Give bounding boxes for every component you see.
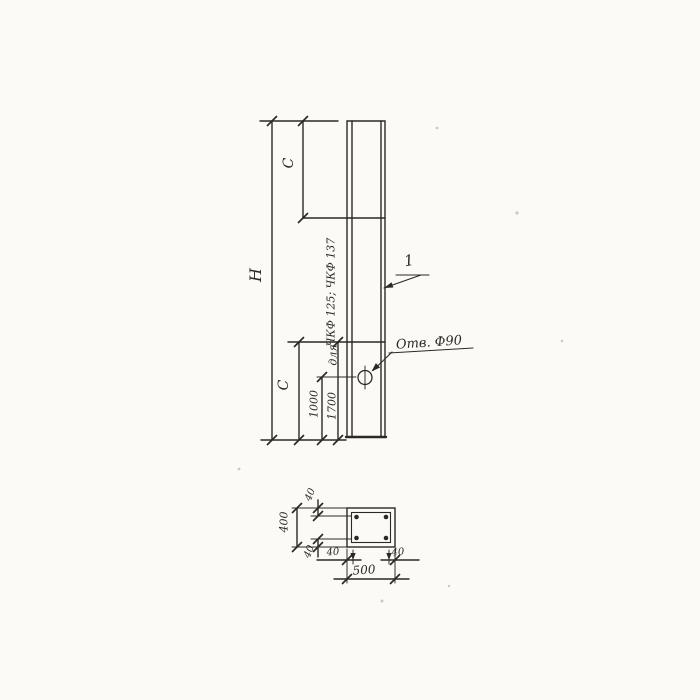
rebar-dot xyxy=(354,515,359,520)
note-series-label: ЧКФ 125; ЧКФ 137 xyxy=(326,238,337,346)
drawing-linework xyxy=(0,0,700,700)
rebar-dot xyxy=(354,536,359,541)
note-word-label: для xyxy=(328,344,339,365)
dim-label-1700: 1700 xyxy=(326,392,337,420)
section-outer-outline xyxy=(347,508,395,547)
section-label-cover-left: 40 xyxy=(326,548,339,559)
column-outline xyxy=(347,121,385,437)
hole-callout-group xyxy=(358,348,473,389)
dim-label-height: H xyxy=(248,268,264,282)
rebar-dot xyxy=(384,536,389,541)
speck xyxy=(515,211,518,214)
section-view xyxy=(347,508,395,547)
dim-label-1000: 1000 xyxy=(309,390,320,418)
dim-label-bottom-offset: C xyxy=(277,380,291,391)
dim-label-top-offset: C xyxy=(282,158,296,169)
rebar-dot xyxy=(384,515,389,520)
drawing-sheet: H C C 1000 1700 для ЧКФ 125; ЧКФ 137 Отв… xyxy=(0,0,700,700)
section-label-cover-right: 40 xyxy=(391,548,404,559)
speck xyxy=(448,585,450,587)
speck xyxy=(238,468,241,471)
section-label-500: 500 xyxy=(352,563,376,577)
speck xyxy=(561,340,564,343)
speck xyxy=(436,127,439,130)
section-label-400: 400 xyxy=(279,512,290,533)
part-tag-group xyxy=(384,275,429,288)
speck xyxy=(381,600,384,603)
